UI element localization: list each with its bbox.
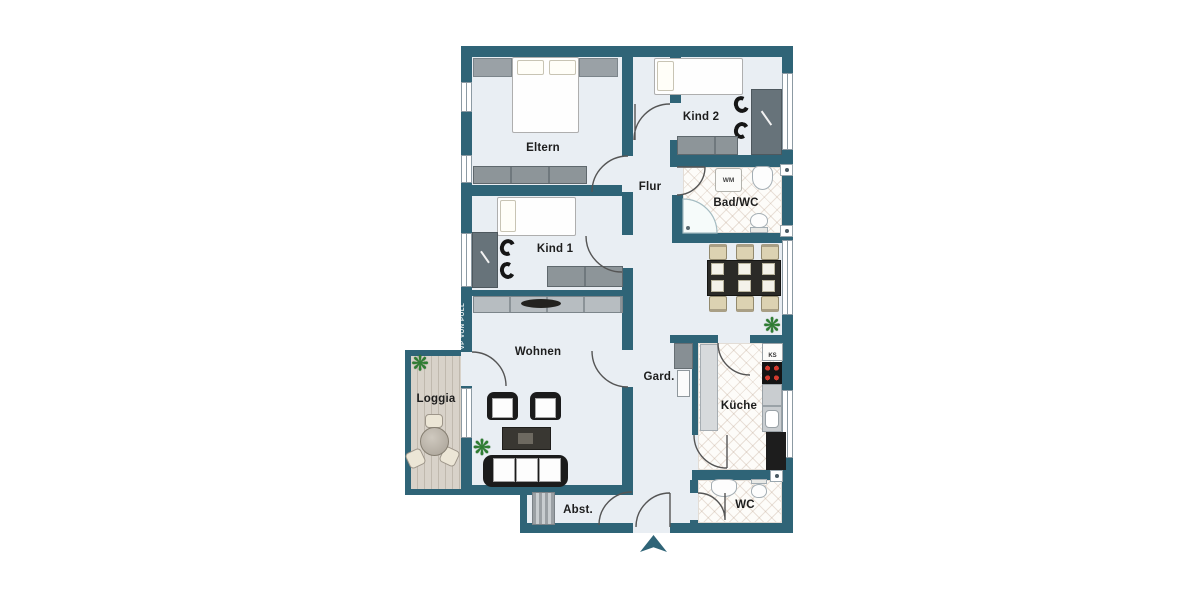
wall	[461, 185, 633, 196]
kitchen-counter-dark	[766, 432, 786, 470]
room-label-wc: WC	[735, 499, 755, 511]
window	[461, 155, 472, 183]
placemat	[738, 280, 751, 292]
door-opening	[692, 435, 698, 470]
placemat	[711, 263, 724, 275]
room-label-gard: Gard.	[643, 371, 674, 383]
window	[461, 233, 472, 287]
room-label-kind1: Kind 1	[537, 243, 573, 255]
toilet	[751, 484, 767, 498]
dresser	[547, 266, 623, 287]
placemat	[738, 263, 751, 275]
dining-chair	[761, 244, 779, 260]
window	[461, 388, 472, 438]
bathroom-sink	[752, 166, 773, 190]
room-label-loggia: Loggia	[417, 393, 456, 405]
watermark: VP VON POLL	[457, 301, 469, 351]
sofa-cushion	[493, 458, 515, 482]
door-opening	[670, 103, 681, 140]
room-label-kueche: Küche	[721, 400, 757, 412]
dresser	[473, 166, 587, 184]
door-opening	[718, 335, 750, 343]
window	[782, 240, 793, 315]
kitchen-sink	[765, 410, 779, 428]
wall	[461, 46, 793, 57]
wall	[405, 489, 462, 495]
balcony-chair	[425, 414, 443, 428]
room-label-flur: Flur	[639, 181, 662, 193]
door-opening	[622, 235, 633, 268]
floorplan-canvas: WM ❋ ❋ ❋ KS	[0, 0, 1200, 600]
armchair	[487, 392, 518, 420]
fridge-label: KS	[768, 353, 776, 359]
wardrobe	[674, 343, 693, 369]
room-label-kind2: Kind 2	[683, 111, 719, 123]
plant-icon: ❋	[763, 314, 781, 339]
dining-chair	[736, 244, 754, 260]
armchair-seat	[535, 398, 556, 418]
tv	[521, 299, 561, 308]
pillow	[517, 60, 544, 75]
entrance-arrow-icon	[640, 535, 667, 552]
placemat	[762, 280, 775, 292]
pillow	[500, 200, 516, 232]
wall	[670, 155, 793, 167]
wall	[622, 296, 633, 487]
kitchen-cabinet	[700, 344, 718, 431]
plant-icon: ❋	[411, 352, 429, 377]
round-table	[420, 427, 449, 456]
dining-chair	[761, 296, 779, 312]
door-opening	[622, 495, 633, 523]
fridge: KS	[762, 343, 783, 361]
wall	[672, 233, 793, 243]
pillow	[657, 61, 674, 91]
coffee-table	[502, 427, 551, 450]
dining-chair	[736, 296, 754, 312]
room-label-eltern: Eltern	[526, 142, 560, 154]
sofa-cushion	[539, 458, 561, 482]
entrance-opening	[633, 523, 670, 533]
kitchen-counter	[762, 384, 782, 406]
wardrobe	[579, 58, 618, 77]
storage-shelf	[532, 492, 555, 525]
coffee-table-item	[518, 433, 533, 444]
dining-chair	[709, 296, 727, 312]
wall-vent-icon	[780, 225, 793, 237]
wall-vent-icon	[770, 470, 783, 482]
floorplan-notch	[461, 495, 520, 533]
door-opening	[622, 350, 633, 387]
wall-vent-icon	[780, 164, 793, 176]
placemat	[762, 263, 775, 275]
shelf	[677, 370, 690, 397]
sofa-cushion	[516, 458, 538, 482]
room-label-abst: Abst.	[563, 504, 593, 516]
placemat	[711, 280, 724, 292]
door-opening	[690, 493, 698, 520]
washing-machine-label: WM	[723, 177, 735, 184]
room-label-bad: Bad/WC	[713, 197, 758, 209]
wardrobe	[473, 58, 512, 77]
stove	[762, 362, 782, 384]
door-opening	[672, 167, 683, 195]
armchair	[530, 392, 561, 420]
armchair-seat	[492, 398, 513, 418]
window	[782, 73, 793, 150]
door-opening	[461, 352, 472, 386]
toilet	[750, 213, 768, 228]
door-opening	[622, 156, 633, 192]
wall	[670, 523, 793, 533]
wall	[405, 350, 411, 495]
pillow	[549, 60, 576, 75]
desk	[751, 89, 782, 155]
wc-sink	[711, 479, 737, 497]
dining-chair	[709, 244, 727, 260]
toilet-tank	[750, 227, 768, 233]
desk	[472, 232, 498, 288]
dresser	[677, 136, 738, 155]
room-label-wohnen: Wohnen	[515, 346, 561, 358]
washing-machine: WM	[715, 168, 742, 192]
window	[461, 82, 472, 112]
